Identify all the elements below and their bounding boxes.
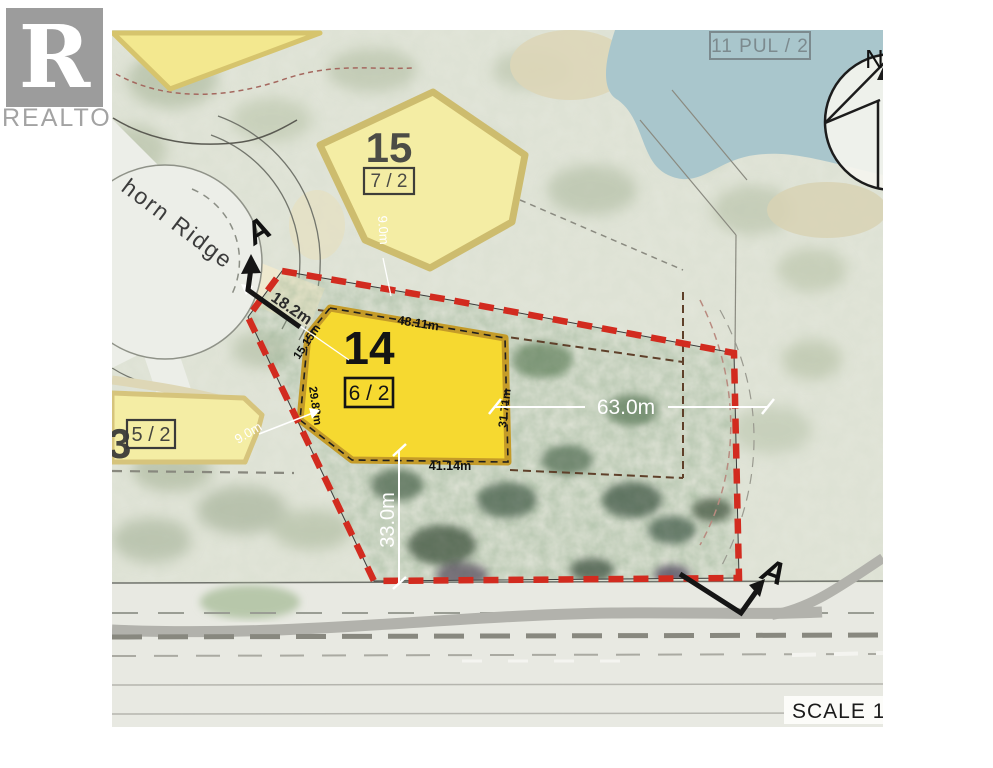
lot-14-plan: 6 / 2 xyxy=(349,382,390,405)
sand-area xyxy=(767,182,883,238)
pul-text: 11 PUL / 2 xyxy=(711,36,809,57)
sand-area xyxy=(289,190,345,260)
road-edge-line xyxy=(112,684,883,685)
realtor-wordmark: REALTOR® xyxy=(2,104,122,133)
dim-depth: 63.0m xyxy=(597,396,655,419)
lot-14-label: 14 6 / 2 xyxy=(343,322,395,407)
lot-14-number: 14 xyxy=(343,322,395,374)
dim-offset-a: 9.0m xyxy=(375,215,392,245)
realtor-logo-letter: R xyxy=(19,15,90,101)
lot-13-number: 3 xyxy=(112,420,131,467)
scale-note: SCALE 1 xyxy=(784,696,883,724)
lot-14-polygon xyxy=(300,308,508,462)
lot-13-plan: 5 / 2 xyxy=(132,424,171,446)
plat-map: horn Ridge 15 7 / 2 xyxy=(112,30,883,727)
compass-north-label: N xyxy=(865,44,883,74)
lot-15-plan: 7 / 2 xyxy=(371,171,408,192)
dim-bottom-side: 41.14m xyxy=(429,459,471,473)
pul-label: 11 PUL / 2 xyxy=(710,32,810,59)
road-edge-line xyxy=(112,713,883,714)
road-centerline xyxy=(112,635,883,637)
lot-15-number: 15 xyxy=(366,124,413,171)
realtor-logo-icon: R xyxy=(6,8,103,107)
scale-text: SCALE 1 xyxy=(792,700,883,723)
dim-south-depth: 33.0m xyxy=(377,492,399,548)
lot-15-label: 15 7 / 2 xyxy=(364,124,414,194)
